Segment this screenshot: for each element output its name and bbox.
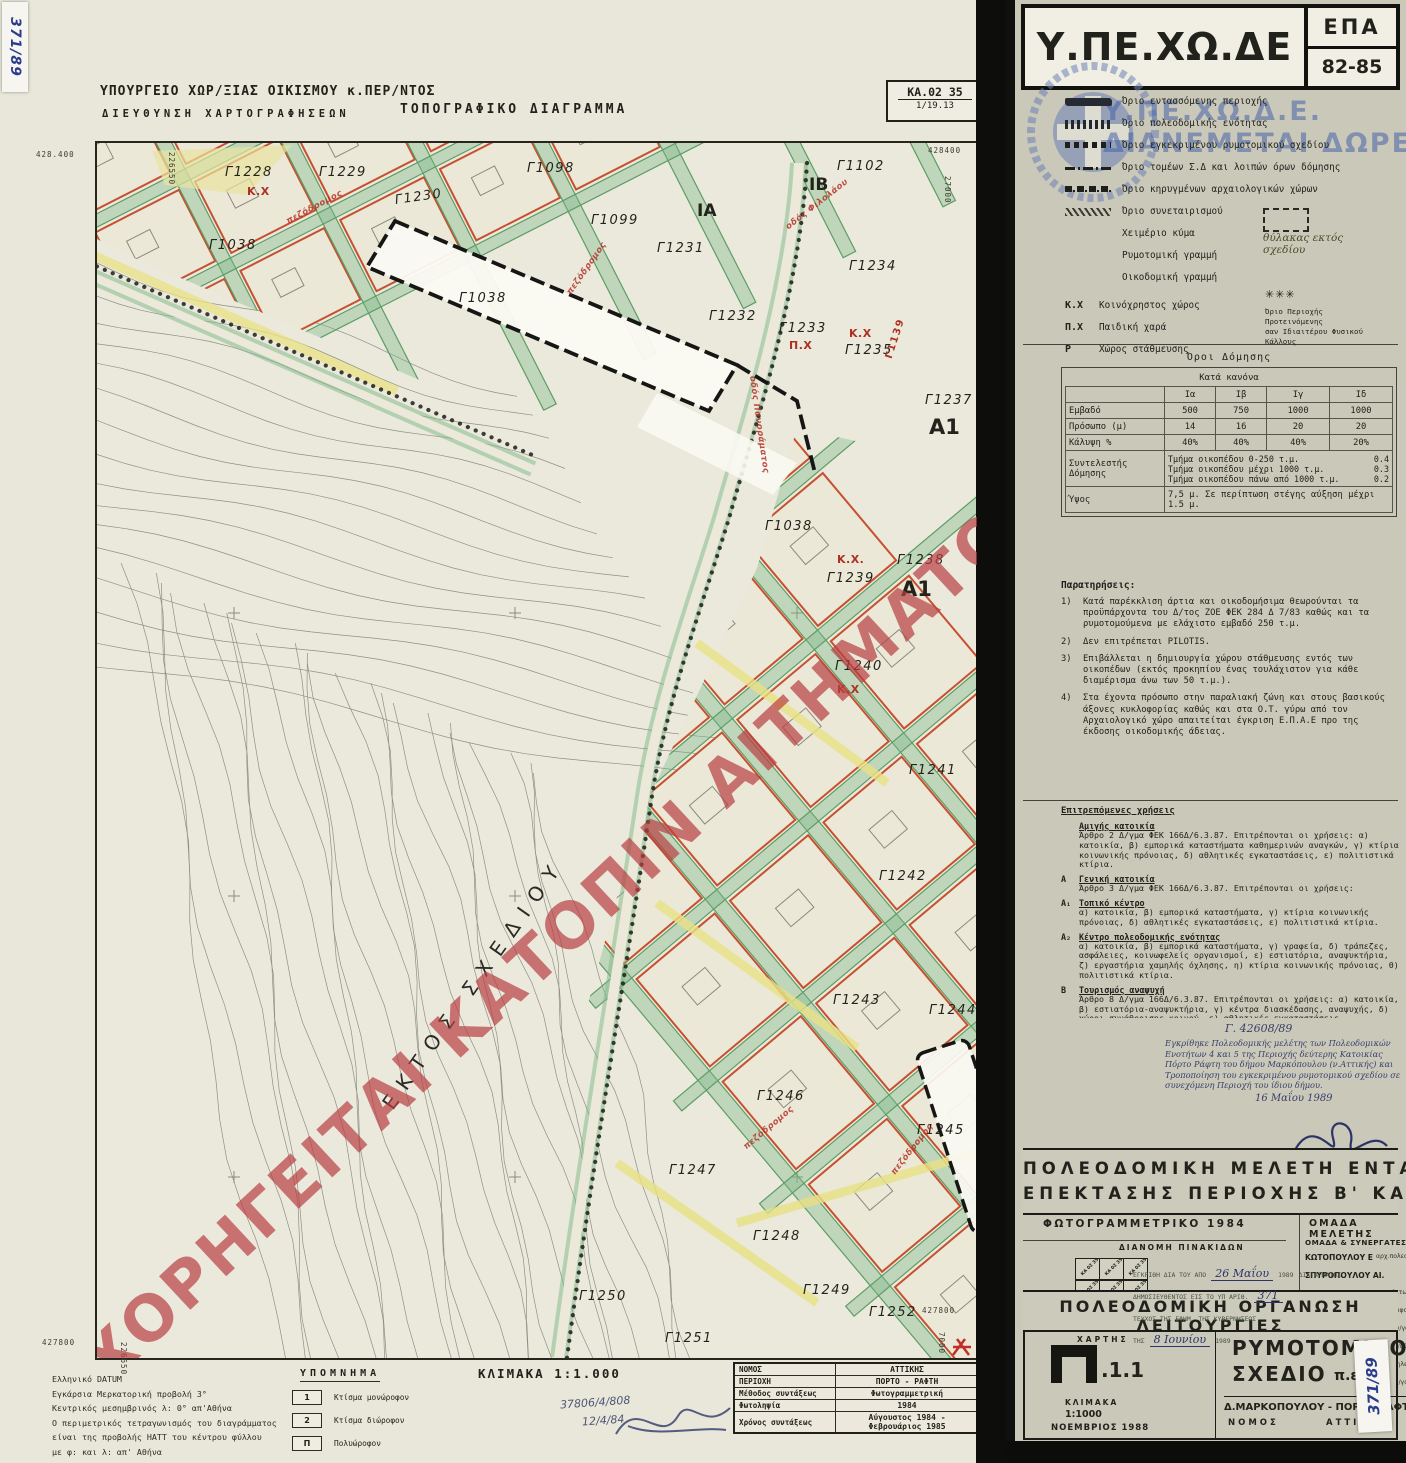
remark-item: 2) Δεν επιτρέπεται PILOTIS. — [1061, 637, 1399, 648]
stamp-line: ΕΓΚΡΙΘΗ ΔΙΑ ΤΟΥ ΑΠΟ — [1133, 1271, 1206, 1279]
info-value: Φωτογραμμετρική — [836, 1388, 980, 1400]
use-body: Άρθρο 2 Δ/γμα ΦΕΚ 166Δ/6.3.87. Επιτρέπον… — [1079, 831, 1399, 870]
signature-scribble — [608, 1386, 738, 1452]
legend-symbol-box: 1 — [292, 1390, 322, 1405]
info-row: Φωτοληψία 1984 — [734, 1400, 979, 1412]
ministry-title: ΥΠΟΥΡΓΕΙΟ ΧΩΡ/ΞΙΑΣ ΟΙΚΙΣΜΟΥ κ.ΠΕΡ/ΝΤΟΣ — [100, 84, 435, 99]
building-legend-row: Π Πολυώροφον — [292, 1436, 482, 1451]
legend-item: Όριο εντασσόμενης περιοχής — [1065, 96, 1405, 118]
sheet-index-tile: ΚΑ 02 35 — [1075, 1258, 1100, 1280]
info-value: Αύγουστος 1984 - Φεβρουάριος 1985 — [836, 1412, 980, 1434]
abbreviation-legend: Κ.Χ Κοινόχρηστος χώρος Π.Χ Παιδική χαρά … — [1065, 300, 1285, 366]
divider — [1023, 1240, 1286, 1241]
map-title: ΤΟΠΟΓΡΑΦΙΚΟ ΔΙΑΓΡΑΜΜΑ — [400, 102, 627, 117]
legend-line-symbol-icon — [1065, 98, 1111, 105]
legend-item-label: Όριο εντασσόμενης περιοχής — [1122, 96, 1268, 107]
datum-line: με φ: και λ: απ' Αθήνα — [52, 1445, 302, 1460]
legend-symbol-box: 2 — [292, 1413, 322, 1428]
abbreviation-key: Κ.Χ — [1065, 300, 1099, 311]
building-legend-row: 1 Κτίσμα μονώροφον — [292, 1390, 482, 1405]
info-row: Χρόνος συντάξεως Αύγουστος 1984 - Φεβρου… — [734, 1412, 979, 1434]
info-value: 1984 — [836, 1400, 980, 1412]
tiles-title: ΔΙΑΝΟΜΗ ΠΙΝΑΚΙΔΩΝ — [1119, 1243, 1245, 1252]
use-body: α) κατοικία, β) εμπορικά καταστήματα, γ)… — [1079, 908, 1399, 928]
datum-notes: Ελληνικό DATUMΕγκάρσια Μερκατορική προβο… — [52, 1372, 302, 1459]
use-zone-tag: Α₂ — [1061, 932, 1079, 942]
terms-subtitle: Κατά κανόνα — [1065, 373, 1393, 383]
archive-sticker-top-left: 371/89 — [2, 2, 28, 92]
building-legend: 1 Κτίσμα μονώροφον 2 Κτίσμα διώροφον Π Π… — [292, 1390, 482, 1459]
terms-row-label: Κάλυψη % — [1066, 435, 1165, 451]
terms-value: 20 — [1330, 419, 1393, 435]
datum-line: Κεντρικός μεσημβρινός λ: 0° απ'Αθήνα — [52, 1401, 302, 1416]
info-row: Μέθοδος συντάξεως Φωτογραμμετρική — [734, 1388, 979, 1400]
info-key: Φωτοληψία — [734, 1400, 836, 1412]
map-label: Γ1232 — [709, 309, 757, 324]
regulations-panel: Υ.ΠΕ.ΧΩ.ΔΕ ΕΠΑ 82-85 Υ.ΠΕ.ΧΩ.Δ.Ε. ΔΙΑΝΕΜ… — [1006, 0, 1406, 1441]
terms-row-label: Εμβαδό — [1066, 403, 1165, 419]
terms-value: 40% — [1267, 435, 1330, 451]
terms-value: 20% — [1330, 435, 1393, 451]
use-zone-tag: Α₁ — [1061, 898, 1079, 908]
map-label: Γ1231 — [657, 241, 705, 256]
sdo-cell: Τμήμα οικοπέδου 0-250 τ.μ. 0.4 Τμήμα οικ… — [1165, 451, 1393, 487]
approval-date: 16 Μαΐου 1989 — [1255, 1093, 1405, 1104]
info-key: ΠΕΡΙΟΧΗ — [734, 1376, 836, 1388]
legend-label: Πολυώροφον — [334, 1439, 381, 1448]
legend-line-symbol-icon — [1065, 208, 1111, 216]
legend-item: Όριο πολεοδομικής ενότητας — [1065, 118, 1405, 140]
chart-code: .1.1 — [1101, 1358, 1144, 1382]
approval-reference: Γ. 42608/89 — [1225, 1022, 1405, 1035]
legend-line-symbol-icon — [1065, 186, 1111, 192]
legend-item-label: Όριο πολεοδομικής ενότητας — [1122, 118, 1268, 129]
sdo-line: Τμήμα οικοπέδου πάνω από 1000 τ.μ. 0.2 — [1168, 474, 1389, 484]
stamp-line: ΤΗΣ — [1133, 1337, 1145, 1345]
legend-line-symbol-icon — [1065, 274, 1111, 282]
map-label: Γ1241 — [909, 763, 957, 778]
map-label: Γ1233 — [779, 321, 827, 336]
map-label: ΙΑ — [697, 201, 716, 221]
stamp-handwritten-number: 371 — [1254, 1289, 1283, 1303]
survey-info-table: ΝΟΜΟΣ ΑΤΤΙΚΗΣ ΠΕΡΙΟΧΗ ΠΟΡΤΟ - ΡΑΦΤΗ Μέθο… — [733, 1362, 980, 1434]
map-label: Γ1243 — [833, 993, 881, 1008]
remark-item: 1) Κατά παρέκκλιση άρτια και οικοδομήσιμ… — [1061, 597, 1399, 631]
remark-number: 1) — [1061, 597, 1083, 631]
info-key: Χρόνος συντάξεως — [734, 1412, 836, 1434]
legend-line-symbol-icon — [1065, 142, 1111, 148]
map-label: Π.Χ — [789, 339, 812, 352]
map-label: Γ1250 — [579, 1289, 627, 1304]
sdo-value: 0.2 — [1363, 474, 1389, 484]
map-coordinate: 7000 — [937, 1332, 946, 1354]
sheet-index: 1/19.13 — [888, 101, 982, 111]
terms-value: 20 — [1267, 419, 1330, 435]
use-block: Α₁ Τοπικό κέντρο α) κατοικία, β) εμπορικ… — [1061, 898, 1399, 928]
pi-logo-icon — [1051, 1345, 1097, 1383]
abbreviation-label: Κοινόχρηστος χώρος — [1099, 300, 1200, 311]
map-drawing — [97, 143, 977, 1358]
prefecture-label: ΝΟΜΟΣ — [1228, 1418, 1279, 1428]
map-coordinate: 428400 — [928, 146, 961, 155]
stamp-line: ΔΙΑΤΑΓΜΑΤΟΣ — [1299, 1271, 1341, 1279]
legend-item: Όριο κηρυγμένων αρχαιολογικών χώρων — [1065, 184, 1405, 206]
use-block: Β Τουρισμός αναψυχή Άρθρο 8 Δ/γμα 166Δ/6… — [1061, 985, 1399, 1018]
approval-stamp: ΕΓΚΡΙΘΗ ΔΙΑ ΤΟΥ ΑΠΟ 26 Μαΐου 1989 ΔΙΑΤΑΓ… — [1133, 1262, 1313, 1350]
datum-line: Ο περιμετρικός τετραγωνισμός του διαγράμ… — [52, 1416, 302, 1431]
sdo-label: Συντελεστής Δόμησης — [1066, 451, 1165, 487]
terms-height-row: Ύψος 7,5 μ. Σε περίπτωση στέγης αύξηση μ… — [1066, 487, 1393, 513]
datum-line: είναι της προβολής HATT του κέντρου φύλλ… — [52, 1430, 302, 1445]
terms-row-label: Πρόσωπο (μ) — [1066, 419, 1165, 435]
out-of-plan-pocket-note: θύλακας εκτός σχεδίου — [1263, 208, 1406, 256]
use-block: Α Γενική κατοικία Άρθρο 3 Δ/γμα ΦΕΚ 166Δ… — [1061, 874, 1399, 894]
dashed-box-icon — [1263, 208, 1309, 232]
study-title-line2: ΕΠΕΚΤΑΣΗΣ ΠΕΡΙΟΧΗΣ Β' ΚΑΤΟΙΚΙΑΣ — [1023, 1181, 1398, 1206]
directorate-title: ΔΙΕΥΘΥΝΣΗ ΧΑΡΤΟΓΡΑΦΗΣΕΩΝ — [102, 108, 350, 120]
map-label: Γ1229 — [319, 165, 367, 180]
sdo-value: 0.3 — [1363, 464, 1389, 474]
use-body: α) κατοικία, β) εμπορικά καταστήματα, γ)… — [1079, 942, 1399, 981]
sheet-code: ΚΑ.02 35 — [898, 85, 972, 100]
map-label: Γ1234 — [849, 259, 897, 274]
height-label: Ύψος — [1066, 487, 1165, 513]
map-label: Γ1102 — [837, 159, 885, 174]
map-label: Κ.Χ — [849, 327, 872, 340]
scale-label: ΚΛΙΜΑΚΑ 1:1.000 — [478, 1366, 621, 1381]
stars-note-line2: σαν Ιδιαιτέρου Φυσικού Κάλλους — [1265, 327, 1363, 346]
terms-table: Ια Ιβ Ιγ Ιδ Εμβαδό 500 750 1000 — [1065, 386, 1393, 513]
terms-sdo-row: Συντελεστής Δόμησης Τμήμα οικοπέδου 0-25… — [1066, 451, 1393, 487]
legend-item-label: Όριο εγκεκριμένου ρυμοτομικού σχεδίου — [1122, 140, 1329, 151]
building-terms: Όροι Δόμησης Κατά κανόνα Ια Ιβ Ιγ Ιδ — [1061, 352, 1397, 517]
remark-text: Κατά παρέκκλιση άρτια και οικοδομήσιμα θ… — [1083, 597, 1399, 631]
divider — [1023, 800, 1398, 801]
epa-years: 82-85 — [1308, 46, 1396, 87]
legend-title: ΥΠΟΜΝΗΜΑ — [300, 1368, 380, 1382]
panel-date: ΝΟΕΜΒΡΙΟΣ 1988 — [1051, 1423, 1149, 1433]
legend-line-symbol-icon — [1065, 252, 1111, 260]
remark-text: Δεν επιτρέπεται PILOTIS. — [1083, 637, 1399, 648]
map-label: Γ1239 — [827, 571, 875, 586]
map-label: Γ1247 — [669, 1163, 717, 1178]
map-label: Γ1252 — [869, 1305, 917, 1320]
uses-title: Επιτρεπόμενες χρήσεις — [1061, 806, 1399, 816]
legend-item: Όριο τομέων Σ.Δ και λοιπών όρων δόμησης — [1065, 162, 1405, 184]
map-label: Γ1038 — [459, 291, 507, 306]
stars-icon: ✳✳✳ — [1265, 288, 1296, 301]
remark-number: 4) — [1061, 693, 1083, 738]
sdo-line: Τμήμα οικοπέδου μέχρι 1000 τ.μ. 0.3 — [1168, 464, 1389, 474]
remarks-section: Παρατηρήσεις: 1) Κατά παρέκκλιση άρτια κ… — [1061, 580, 1399, 798]
height-value: 7,5 μ. Σε περίπτωση στέγης αύξηση μέχρι … — [1165, 487, 1393, 513]
datum-line: Ελληνικό DATUM — [52, 1372, 302, 1387]
terms-value: 40% — [1216, 435, 1267, 451]
sdo-text: Τμήμα οικοπέδου πάνω από 1000 τ.μ. — [1168, 474, 1363, 484]
terms-header-row: Ια Ιβ Ιγ Ιδ — [1066, 387, 1393, 403]
team-subtitle: ΟΜΑΔΑ & ΣΥΝΕΡΓΑΤΕΣ — [1305, 1238, 1406, 1247]
terms-value: 750 — [1216, 403, 1267, 419]
sheet-index-tile: ΚΑ 02 35 — [1099, 1258, 1124, 1280]
epa-label: ΕΠΑ — [1308, 8, 1396, 46]
terms-empty-cell — [1066, 387, 1165, 403]
approval-text: Εγκρίθηκε Πολεοδομικής μελέτης των Πολεο… — [1165, 1038, 1405, 1091]
info-key: ΝΟΜΟΣ — [734, 1363, 836, 1376]
terms-value: 16 — [1216, 419, 1267, 435]
team-member-role: αρχ.πολεοδ — [1376, 1253, 1406, 1262]
map-coordinate: 428.400 — [36, 150, 75, 159]
legend-item: Όριο εγκεκριμένου ρυμοτομικού σχεδίου — [1065, 140, 1405, 162]
terms-col-header: Ιβ — [1216, 387, 1267, 403]
remark-text: Επιβάλλεται η δημιουργία χώρου στάθμευση… — [1083, 654, 1399, 688]
abbreviation-key: Π.Χ — [1065, 322, 1099, 333]
stars-note-line1: Όριο Περιοχής Προτεινόμενης — [1265, 307, 1323, 326]
legend-line-symbol-icon — [1065, 230, 1111, 238]
map-canvas: Γ1228Κ.ΧΓ1229Γ1230Γ1098Γ1102ΙΑΙΒΓ1099Γ10… — [95, 141, 979, 1360]
stamp-year2: 1989 — [1215, 1337, 1230, 1345]
map-label: Γ1099 — [591, 213, 639, 228]
stamp-line: ΔΗΜΟΣΙΕΥΘΕΝΤΟΣ ΕΙΣ ΤΟ ΥΠ ΑΡΙΘ. — [1133, 1293, 1248, 1301]
team-member-row: ΚΩΤΟΠΟΥΛΟΥ Ε αρχ.πολεοδ — [1305, 1253, 1406, 1262]
abbreviation-key: Ρ — [1065, 344, 1099, 355]
team-member-name: ΚΩΤΟΠΟΥΛΟΥ Ε — [1305, 1253, 1373, 1262]
building-legend-row: 2 Κτίσμα διώροφον — [292, 1413, 482, 1428]
legend-item-label: Χειμέριο κύμα — [1122, 228, 1195, 239]
legend-label: Κτίσμα μονώροφον — [334, 1393, 409, 1402]
remark-number: 3) — [1061, 654, 1083, 688]
stamp-line: ΤΕΥΧΟΣ ΤΗΣ ΕΦΗΜ. ΤΗΣ ΚΥΒΕΡΝΗΣΕΩΣ — [1133, 1315, 1256, 1323]
remark-item: 3) Επιβάλλεται η δημιουργία χώρου στάθμε… — [1061, 654, 1399, 688]
legend-item-label: Όριο συνεταιρισμού — [1122, 206, 1223, 217]
remark-number: 2) — [1061, 637, 1083, 648]
legend-item-label: Οικοδομική γραμμή — [1122, 272, 1217, 283]
map-coordinate: 226550 — [167, 152, 176, 185]
chart-label: ΧΑΡΤΗΣ — [1077, 1335, 1129, 1344]
study-title: ΠΟΛΕΟΔΟΜΙΚΗ ΜΕΛΕΤΗ ΕΝΤΑΞΗΣ ΕΠΕΚΤΑΣΗΣ ΠΕΡ… — [1023, 1148, 1398, 1215]
map-label: Γ1246 — [757, 1089, 805, 1104]
team-title: ΟΜΑΔΑ ΜΕΛΕΤΗΣ — [1309, 1218, 1406, 1240]
terms-value: 1000 — [1330, 403, 1393, 419]
map-coordinate: 27000 — [943, 176, 952, 204]
legend-symbol-box: Π — [292, 1436, 322, 1451]
legend-item-label: Ρυμοτομική γραμμή — [1122, 250, 1217, 261]
legend-item-label: Όριο κηρυγμένων αρχαιολογικών χώρων — [1122, 184, 1318, 195]
study-title-line1: ΠΟΛΕΟΔΟΜΙΚΗ ΜΕΛΕΤΗ ΕΝΤΑΞΗΣ — [1023, 1156, 1398, 1181]
sdo-text: Τμήμα οικοπέδου μέχρι 1000 τ.μ. — [1168, 464, 1363, 474]
permitted-uses-section: Επιτρεπόμενες χρήσεις Αμιγής κατοικία Άρ… — [1061, 806, 1399, 1018]
terms-box: Κατά κανόνα Ια Ιβ Ιγ Ιδ — [1061, 367, 1397, 517]
epa-box: ΕΠΑ 82-85 — [1304, 8, 1396, 86]
info-row: ΝΟΜΟΣ ΑΤΤΙΚΗΣ — [734, 1363, 979, 1376]
terms-value: 14 — [1165, 419, 1216, 435]
stars-note-text: Όριο Περιοχής Προτεινόμενης σαν Ιδιαιτέρ… — [1265, 307, 1383, 347]
terms-row: Κάλυψη % 40% 40% 40% 20% — [1066, 435, 1393, 451]
info-value: ΑΤΤΙΚΗΣ — [836, 1363, 980, 1376]
terms-col-header: Ιγ — [1267, 387, 1330, 403]
map-label: Γ1249 — [803, 1283, 851, 1298]
use-zone-tag: Α — [1061, 874, 1079, 884]
use-zone-tag: Β — [1061, 985, 1079, 995]
map-coordinate: 427800 — [42, 1338, 75, 1347]
terms-col-header: Ια — [1165, 387, 1216, 403]
scan-gutter — [976, 0, 1008, 1463]
sdo-line: Τμήμα οικοπέδου 0-250 τ.μ. 0.4 — [1168, 454, 1389, 464]
remarks-title: Παρατηρήσεις: — [1061, 580, 1399, 591]
info-row: ΠΕΡΙΟΧΗ ΠΟΡΤΟ - ΡΑΦΤΗ — [734, 1376, 979, 1388]
archive-number: 371/89 — [1363, 1357, 1384, 1416]
use-body: Άρθρο 3 Δ/γμα ΦΕΚ 166Δ/6.3.87. Επιτρέπον… — [1079, 884, 1399, 894]
sdo-value: 0.4 — [1363, 454, 1389, 464]
terms-value: 40% — [1165, 435, 1216, 451]
terms-row: Εμβαδό 500 750 1000 1000 — [1066, 403, 1393, 419]
map-coordinate: 427800 — [922, 1306, 955, 1315]
use-block: Αμιγής κατοικία Άρθρο 2 Δ/γμα ΦΕΚ 166Δ/6… — [1061, 821, 1399, 870]
legend-item-label: Όριο τομέων Σ.Δ και λοιπών όρων δόμησης — [1122, 162, 1340, 173]
scanned-planning-map: 371/89 ΥΠΟΥΡΓΕΙΟ ΧΩΡ/ΞΙΑΣ ΟΙΚΙΣΜΟΥ κ.ΠΕΡ… — [0, 0, 1406, 1463]
legend-line-symbol-icon — [1065, 120, 1111, 129]
stamp-handwritten-date2: 8 Ιουνίου — [1150, 1333, 1210, 1347]
map-label: Γ1251 — [665, 1331, 713, 1346]
pocket-note-text: θύλακας εκτός σχεδίου — [1263, 232, 1349, 256]
remark-text: Στα έχοντα πρόσωπο στην παραλιακή ζώνη κ… — [1083, 693, 1399, 738]
approval-note: Γ. 42608/89 Εγκρίθηκε Πολεοδομικής μελέτ… — [1165, 1022, 1405, 1140]
map-sheet: 371/89 ΥΠΟΥΡΓΕΙΟ ΧΩΡ/ΞΙΑΣ ΟΙΚΙΣΜΟΥ κ.ΠΕΡ… — [0, 0, 978, 1463]
terms-row: Πρόσωπο (μ) 14 16 20 20 — [1066, 419, 1393, 435]
scan-edge — [1006, 1441, 1406, 1463]
info-value: ΠΟΡΤΟ - ΡΑΦΤΗ — [836, 1376, 980, 1388]
terms-value: 1000 — [1267, 403, 1330, 419]
map-label: Κ.Χ — [247, 185, 270, 198]
info-key: Μέθοδος συντάξεως — [734, 1388, 836, 1400]
map-label: Γ1248 — [753, 1229, 801, 1244]
map-label: Γ1228 — [225, 165, 273, 180]
use-body: Άρθρο 8 Δ/γμα 166Δ/6.3.87. Επιτρέπονται … — [1079, 995, 1399, 1018]
map-label: Κ.Χ. — [837, 553, 864, 566]
stamp-year: 1989 — [1278, 1271, 1293, 1279]
plan-title-line2: ΣΧΕΔΙΟ — [1232, 1362, 1327, 1386]
map-label: Γ1038 — [765, 519, 813, 534]
map-label: Γ1098 — [527, 161, 575, 176]
sheet-code-box: ΚΑ.02 35 1/19.13 — [886, 80, 984, 122]
use-block: Α₂ Κέντρο πολεοδομικής ενότητας α) κατοι… — [1061, 932, 1399, 981]
map-label: Γ1244 — [929, 1003, 977, 1018]
terms-col-header: Ιδ — [1330, 387, 1393, 403]
boundary-legend: Όριο εντασσόμενης περιοχής Όριο πολεοδομ… — [1065, 96, 1405, 294]
legend-line-symbol-icon — [1065, 167, 1111, 170]
panel-scale-value: 1:1000 — [1065, 1409, 1102, 1420]
abbreviation-row: Π.Χ Παιδική χαρά — [1065, 322, 1285, 344]
stamp-handwritten-date: 26 Μαΐου — [1211, 1267, 1273, 1281]
map-label: Γ1242 — [879, 869, 927, 884]
panel-scale-label: ΚΛΙΜΑΚΑ — [1065, 1398, 1118, 1407]
natural-beauty-note: ✳✳✳ Όριο Περιοχής Προτεινόμενης σαν Ιδια… — [1265, 288, 1406, 348]
map-label: Γ1237 — [925, 393, 973, 408]
use-zone-tag — [1061, 821, 1079, 831]
abbreviation-label: Παιδική χαρά — [1099, 322, 1166, 333]
sdo-text: Τμήμα οικοπέδου 0-250 τ.μ. — [1168, 454, 1363, 464]
map-label: Γ1038 — [209, 238, 257, 253]
archive-number: 371/89 — [7, 17, 23, 77]
abbreviation-row: Κ.Χ Κοινόχρηστος χώρος — [1065, 300, 1285, 322]
abbreviation-row: Ρ Χώρος στάθμευσης — [1065, 344, 1285, 366]
terms-value: 500 — [1165, 403, 1216, 419]
map-label: Α1 — [929, 415, 960, 439]
photogrammetric-label: ΦΩΤΟΓΡΑΜΜΕΤΡΙΚΟ 1984 — [1043, 1218, 1246, 1230]
legend-label: Κτίσμα διώροφον — [334, 1416, 404, 1425]
archive-sticker-bottom-right: 371/89 — [1354, 1339, 1393, 1433]
datum-line: Εγκάρσια Μερκατορική προβολή 3° — [52, 1387, 302, 1402]
abbreviation-label: Χώρος στάθμευσης — [1099, 344, 1189, 355]
remark-item: 4) Στα έχοντα πρόσωπο στην παραλιακή ζών… — [1061, 693, 1399, 738]
